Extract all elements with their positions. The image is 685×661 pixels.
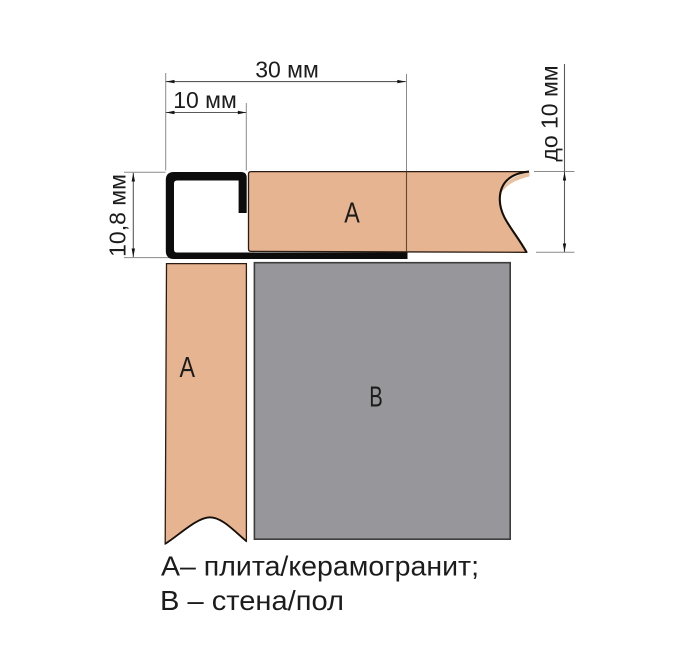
svg-text:30 мм: 30 мм — [255, 57, 319, 83]
svg-text:В: В — [369, 381, 383, 413]
svg-text:10 мм: 10 мм — [173, 87, 237, 113]
svg-text:10,8 мм: 10,8 мм — [105, 174, 131, 257]
svg-text:А– плита/керамогранит;: А– плита/керамогранит; — [161, 550, 479, 581]
svg-text:А: А — [180, 352, 196, 384]
svg-text:В – стена/пол: В – стена/пол — [160, 585, 344, 616]
svg-text:до 10 мм: до 10 мм — [536, 65, 562, 161]
svg-text:А: А — [344, 197, 360, 229]
